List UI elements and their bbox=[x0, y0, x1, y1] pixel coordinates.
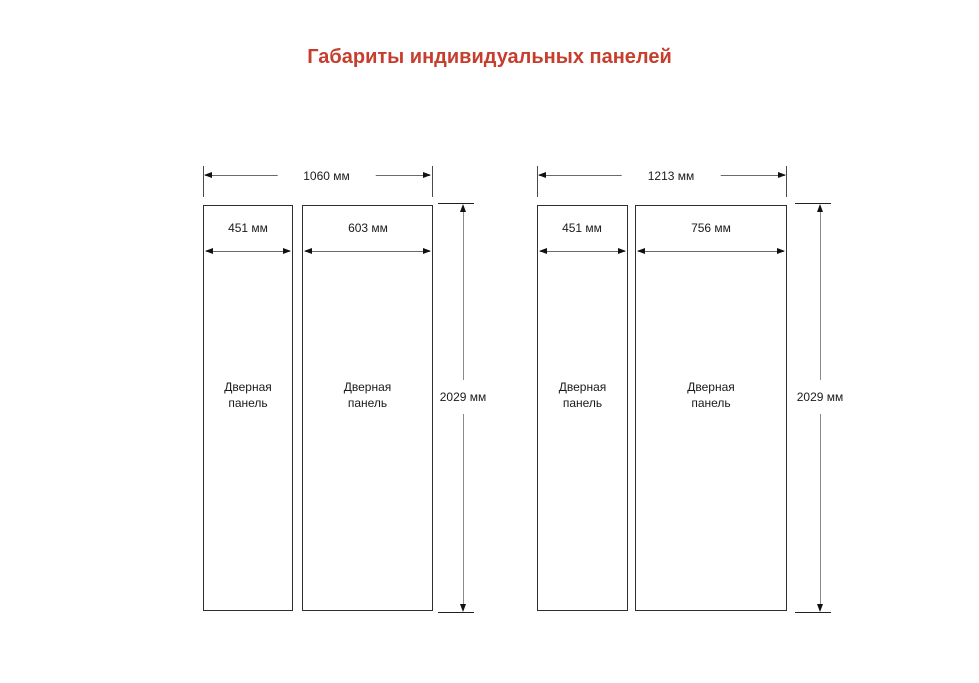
total-width-dimension-label: 1060 мм bbox=[277, 169, 376, 183]
arrowhead-left bbox=[637, 248, 645, 254]
dimension-line bbox=[206, 251, 290, 252]
extension-tick bbox=[438, 203, 474, 204]
extension-tick bbox=[438, 612, 474, 613]
page-title: Габариты индивидуальных панелей bbox=[0, 45, 979, 69]
panel-width-dimension-label: 451 мм bbox=[562, 221, 602, 235]
panel-name-label: Дверная панель bbox=[537, 379, 628, 411]
dimension-line bbox=[540, 251, 625, 252]
arrowhead-left bbox=[304, 248, 312, 254]
arrowhead-right bbox=[283, 248, 291, 254]
panel-name-label: Дверная панель bbox=[635, 379, 787, 411]
extension-line bbox=[432, 166, 433, 197]
arrowhead-down bbox=[817, 604, 823, 612]
total-width-dimension: 1213 мм bbox=[538, 171, 786, 180]
arrowhead-left bbox=[205, 248, 213, 254]
arrowhead-left bbox=[539, 248, 547, 254]
arrowhead-up bbox=[460, 204, 466, 212]
arrowhead-right bbox=[777, 248, 785, 254]
panel-name-label: Дверная панель bbox=[203, 379, 293, 411]
arrowhead-down bbox=[460, 604, 466, 612]
total-width-dimension-label: 1213 мм bbox=[622, 169, 721, 183]
height-dimension-label: 2029 мм bbox=[792, 380, 849, 414]
height-dimension-label: 2029 мм bbox=[435, 380, 492, 414]
panel-width-dimension-label: 603 мм bbox=[348, 221, 388, 235]
panel-width-dimension bbox=[637, 247, 785, 256]
dimension-line bbox=[638, 251, 784, 252]
panel-width-dimension bbox=[304, 247, 431, 256]
arrowhead-right bbox=[778, 172, 786, 178]
total-width-dimension: 1060 мм bbox=[204, 171, 431, 180]
arrowhead-up bbox=[817, 204, 823, 212]
extension-tick bbox=[795, 612, 831, 613]
arrowhead-right bbox=[618, 248, 626, 254]
panel-width-dimension bbox=[539, 247, 626, 256]
arrowhead-right bbox=[423, 172, 431, 178]
diagram-page: Габариты индивидуальных панелей 1060 мм … bbox=[0, 0, 979, 683]
panel-width-dimension bbox=[205, 247, 291, 256]
panel-width-dimension-label: 756 мм bbox=[691, 221, 731, 235]
arrowhead-left bbox=[538, 172, 546, 178]
arrowhead-right bbox=[423, 248, 431, 254]
dimension-line bbox=[305, 251, 430, 252]
extension-tick bbox=[795, 203, 831, 204]
panel-name-label: Дверная панель bbox=[302, 379, 433, 411]
panel-width-dimension-label: 451 мм bbox=[228, 221, 268, 235]
arrowhead-left bbox=[204, 172, 212, 178]
extension-line bbox=[786, 166, 787, 197]
